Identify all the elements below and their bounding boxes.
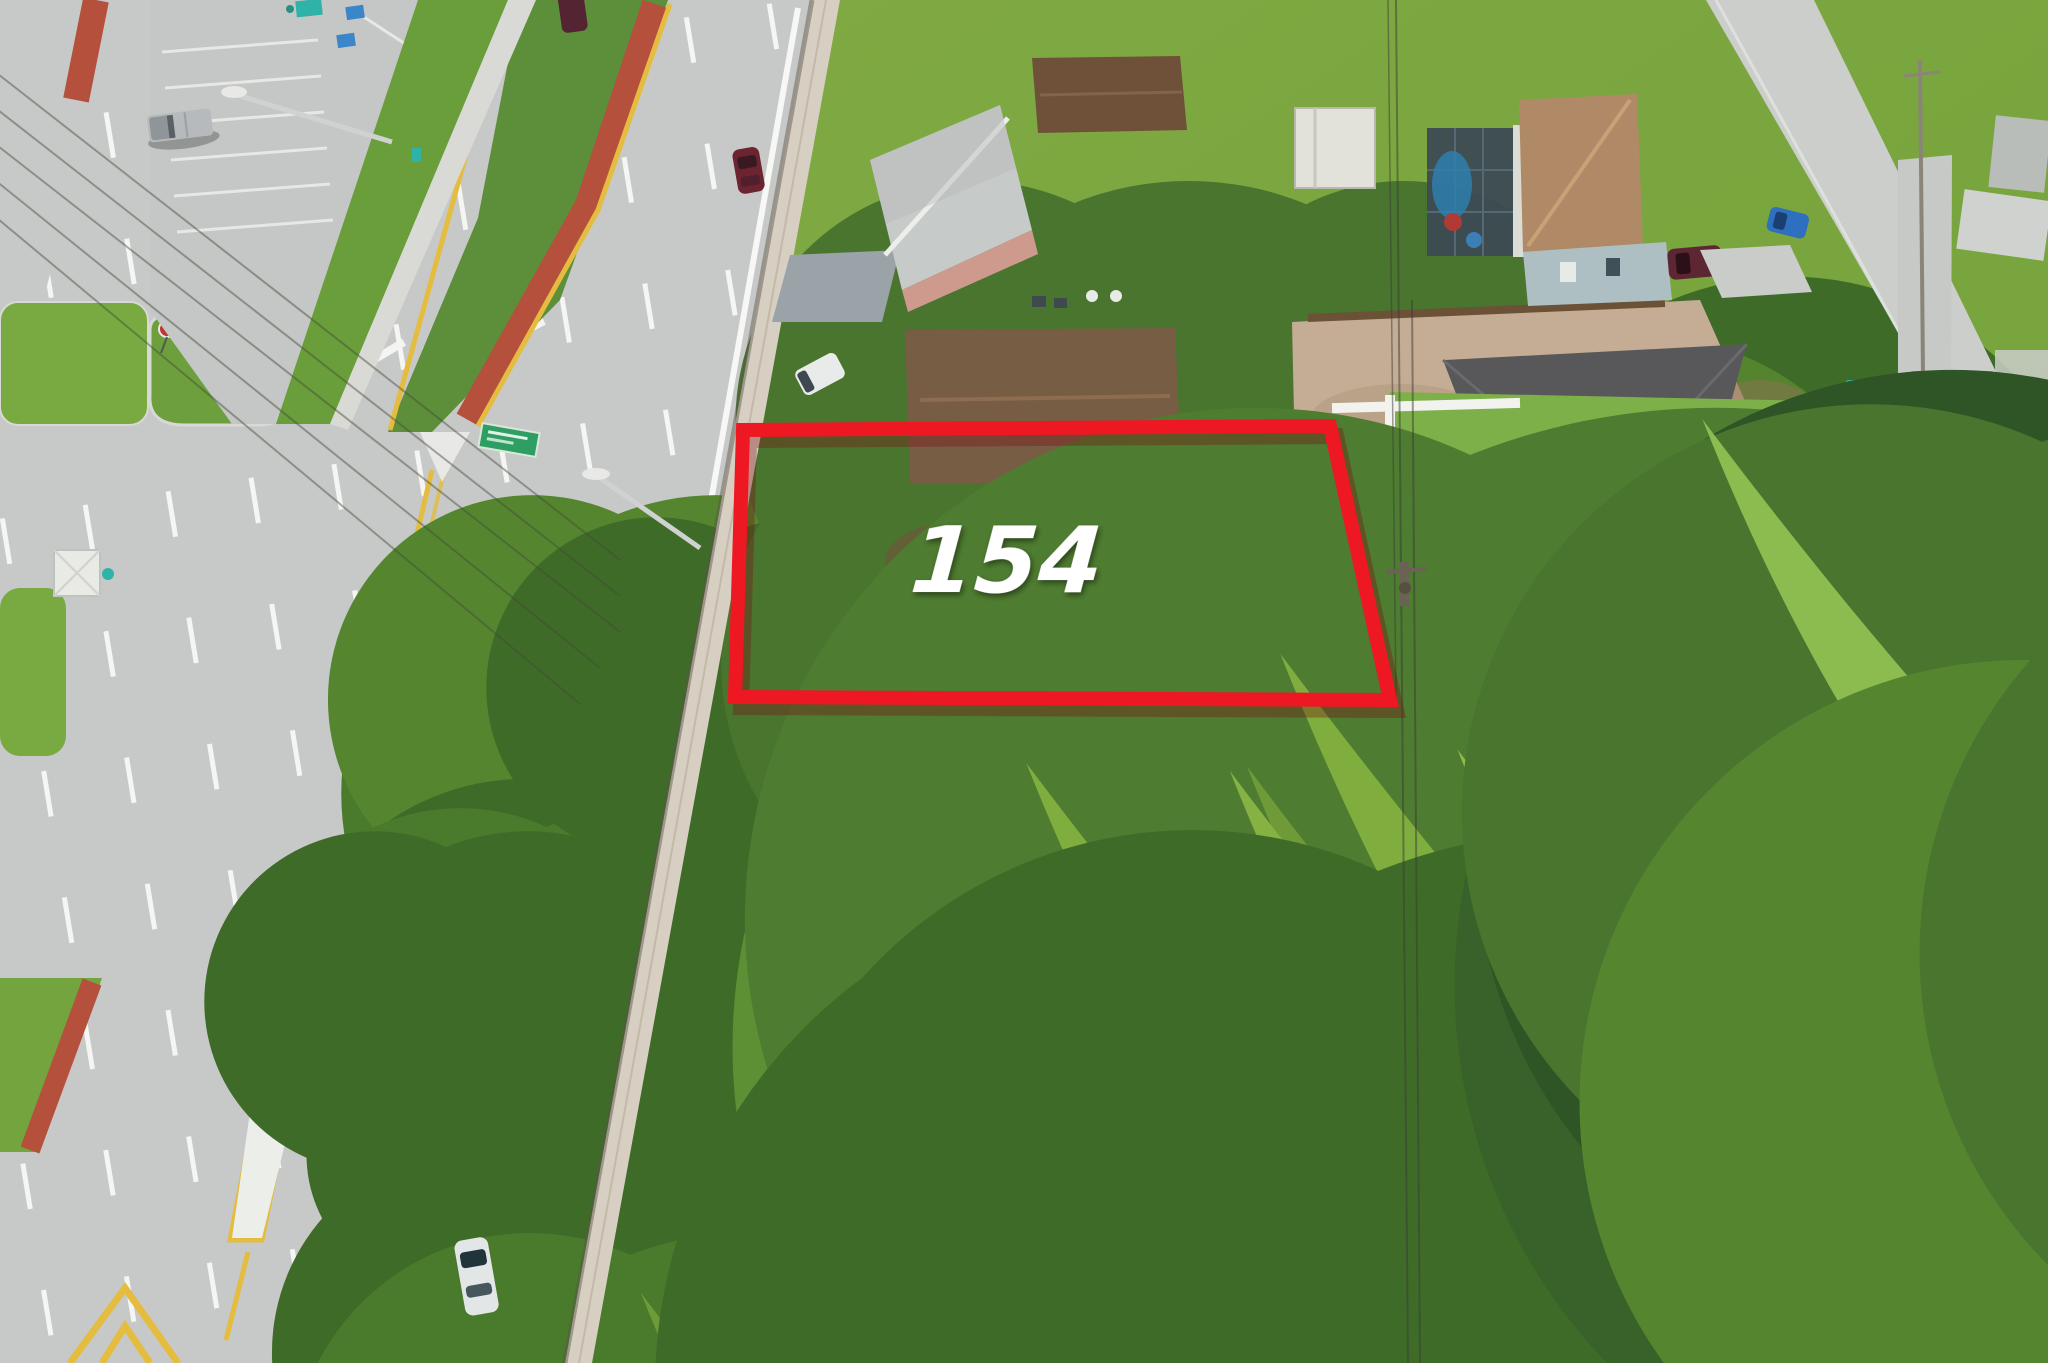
caged-pool-water	[1432, 151, 1472, 219]
pedestrian-sign	[412, 148, 421, 162]
gray-house-driveway	[772, 250, 900, 322]
gray-structure-top-right	[1988, 115, 2048, 192]
concrete-pad	[1956, 189, 2048, 261]
blue-house-walls	[1523, 242, 1672, 306]
red-umbrella	[1444, 213, 1462, 231]
white-shed	[1295, 108, 1375, 188]
aerial-photo: 154	[0, 0, 2048, 1363]
handicap-stall-marking	[345, 5, 365, 20]
lot-number-label: 154	[907, 507, 1107, 614]
handicap-stall-marking-2	[336, 33, 356, 48]
top-brown-roof-house	[1032, 56, 1187, 133]
